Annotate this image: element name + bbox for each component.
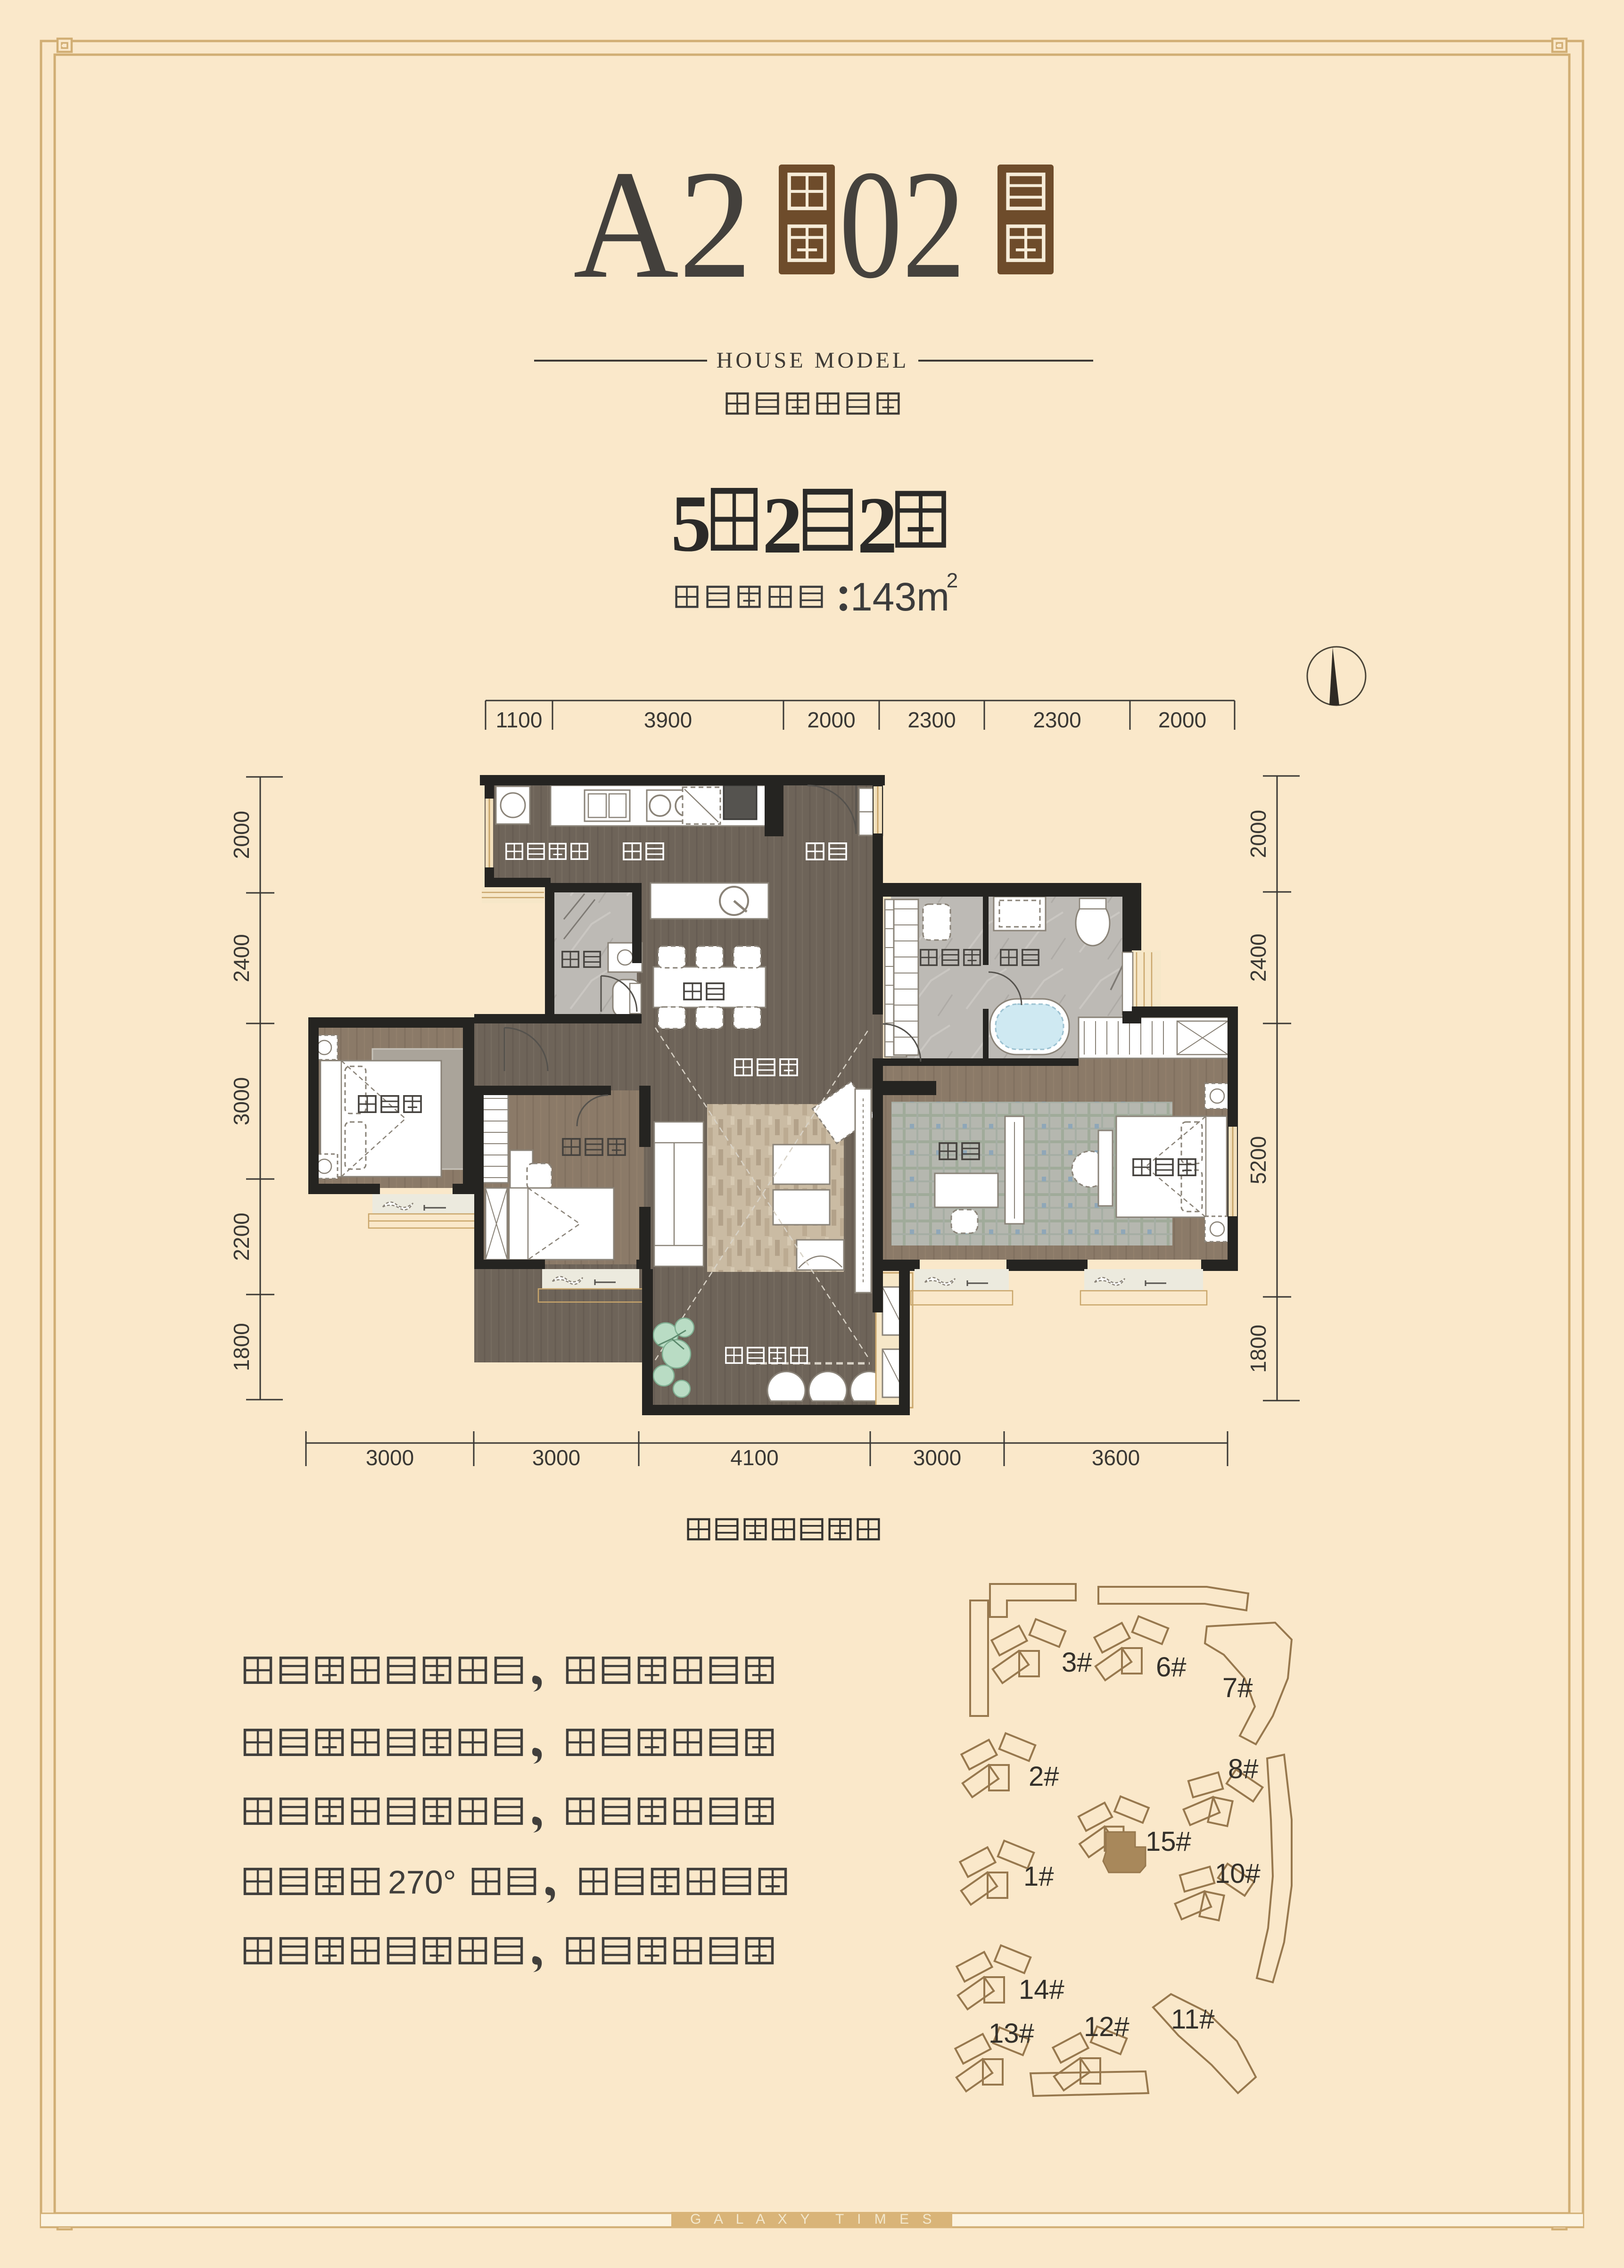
svg-text:1100: 1100 [496, 708, 543, 732]
svg-text:2400: 2400 [1246, 933, 1270, 981]
svg-text:3000: 3000 [229, 1077, 254, 1125]
svg-text:2000: 2000 [1246, 810, 1270, 858]
svg-text:02: 02 [839, 139, 965, 311]
svg-text:2: 2 [947, 569, 958, 592]
svg-text:1800: 1800 [229, 1323, 254, 1371]
svg-text:8#: 8# [1228, 1754, 1259, 1784]
svg-text:15#: 15# [1146, 1826, 1191, 1857]
svg-text:2: 2 [857, 481, 898, 570]
svg-text:1#: 1# [1023, 1861, 1054, 1892]
svg-text:2#: 2# [1029, 1761, 1059, 1792]
svg-text:4100: 4100 [730, 1445, 778, 1470]
svg-text:6#: 6# [1156, 1652, 1187, 1682]
svg-text:2000: 2000 [229, 811, 254, 859]
svg-text:3000: 3000 [532, 1445, 580, 1470]
svg-text:3600: 3600 [1092, 1445, 1140, 1470]
svg-text:2300: 2300 [1033, 708, 1081, 732]
svg-text:2400: 2400 [229, 934, 254, 982]
svg-text:3000: 3000 [913, 1445, 961, 1470]
svg-text:2200: 2200 [229, 1212, 254, 1261]
svg-text:2300: 2300 [907, 708, 956, 732]
svg-text:14#: 14# [1019, 1974, 1064, 2005]
svg-text:G A L A X Y: G A L A X Y [690, 2211, 814, 2227]
svg-text:11#: 11# [1171, 2004, 1214, 2035]
svg-text:3900: 3900 [644, 708, 692, 732]
svg-text:A2: A2 [573, 139, 752, 311]
svg-text:5200: 5200 [1246, 1136, 1270, 1184]
svg-text:13#: 13# [989, 2018, 1034, 2049]
svg-text:270°: 270° [388, 1864, 456, 1901]
svg-text:10#: 10# [1215, 1858, 1261, 1889]
svg-text:T I M E S: T I M E S [835, 2211, 936, 2227]
svg-text:5: 5 [671, 479, 711, 569]
svg-text:2000: 2000 [807, 708, 855, 732]
svg-text:143m: 143m [850, 575, 949, 619]
svg-text:7#: 7# [1222, 1673, 1253, 1703]
svg-text:2000: 2000 [1158, 708, 1206, 732]
svg-text:12#: 12# [1084, 2012, 1129, 2042]
svg-text:3#: 3# [1062, 1647, 1092, 1678]
svg-text:2: 2 [762, 481, 803, 570]
svg-text:HOUSE MODEL: HOUSE MODEL [717, 348, 909, 373]
svg-text:1800: 1800 [1246, 1325, 1270, 1373]
svg-text:3000: 3000 [366, 1445, 414, 1470]
